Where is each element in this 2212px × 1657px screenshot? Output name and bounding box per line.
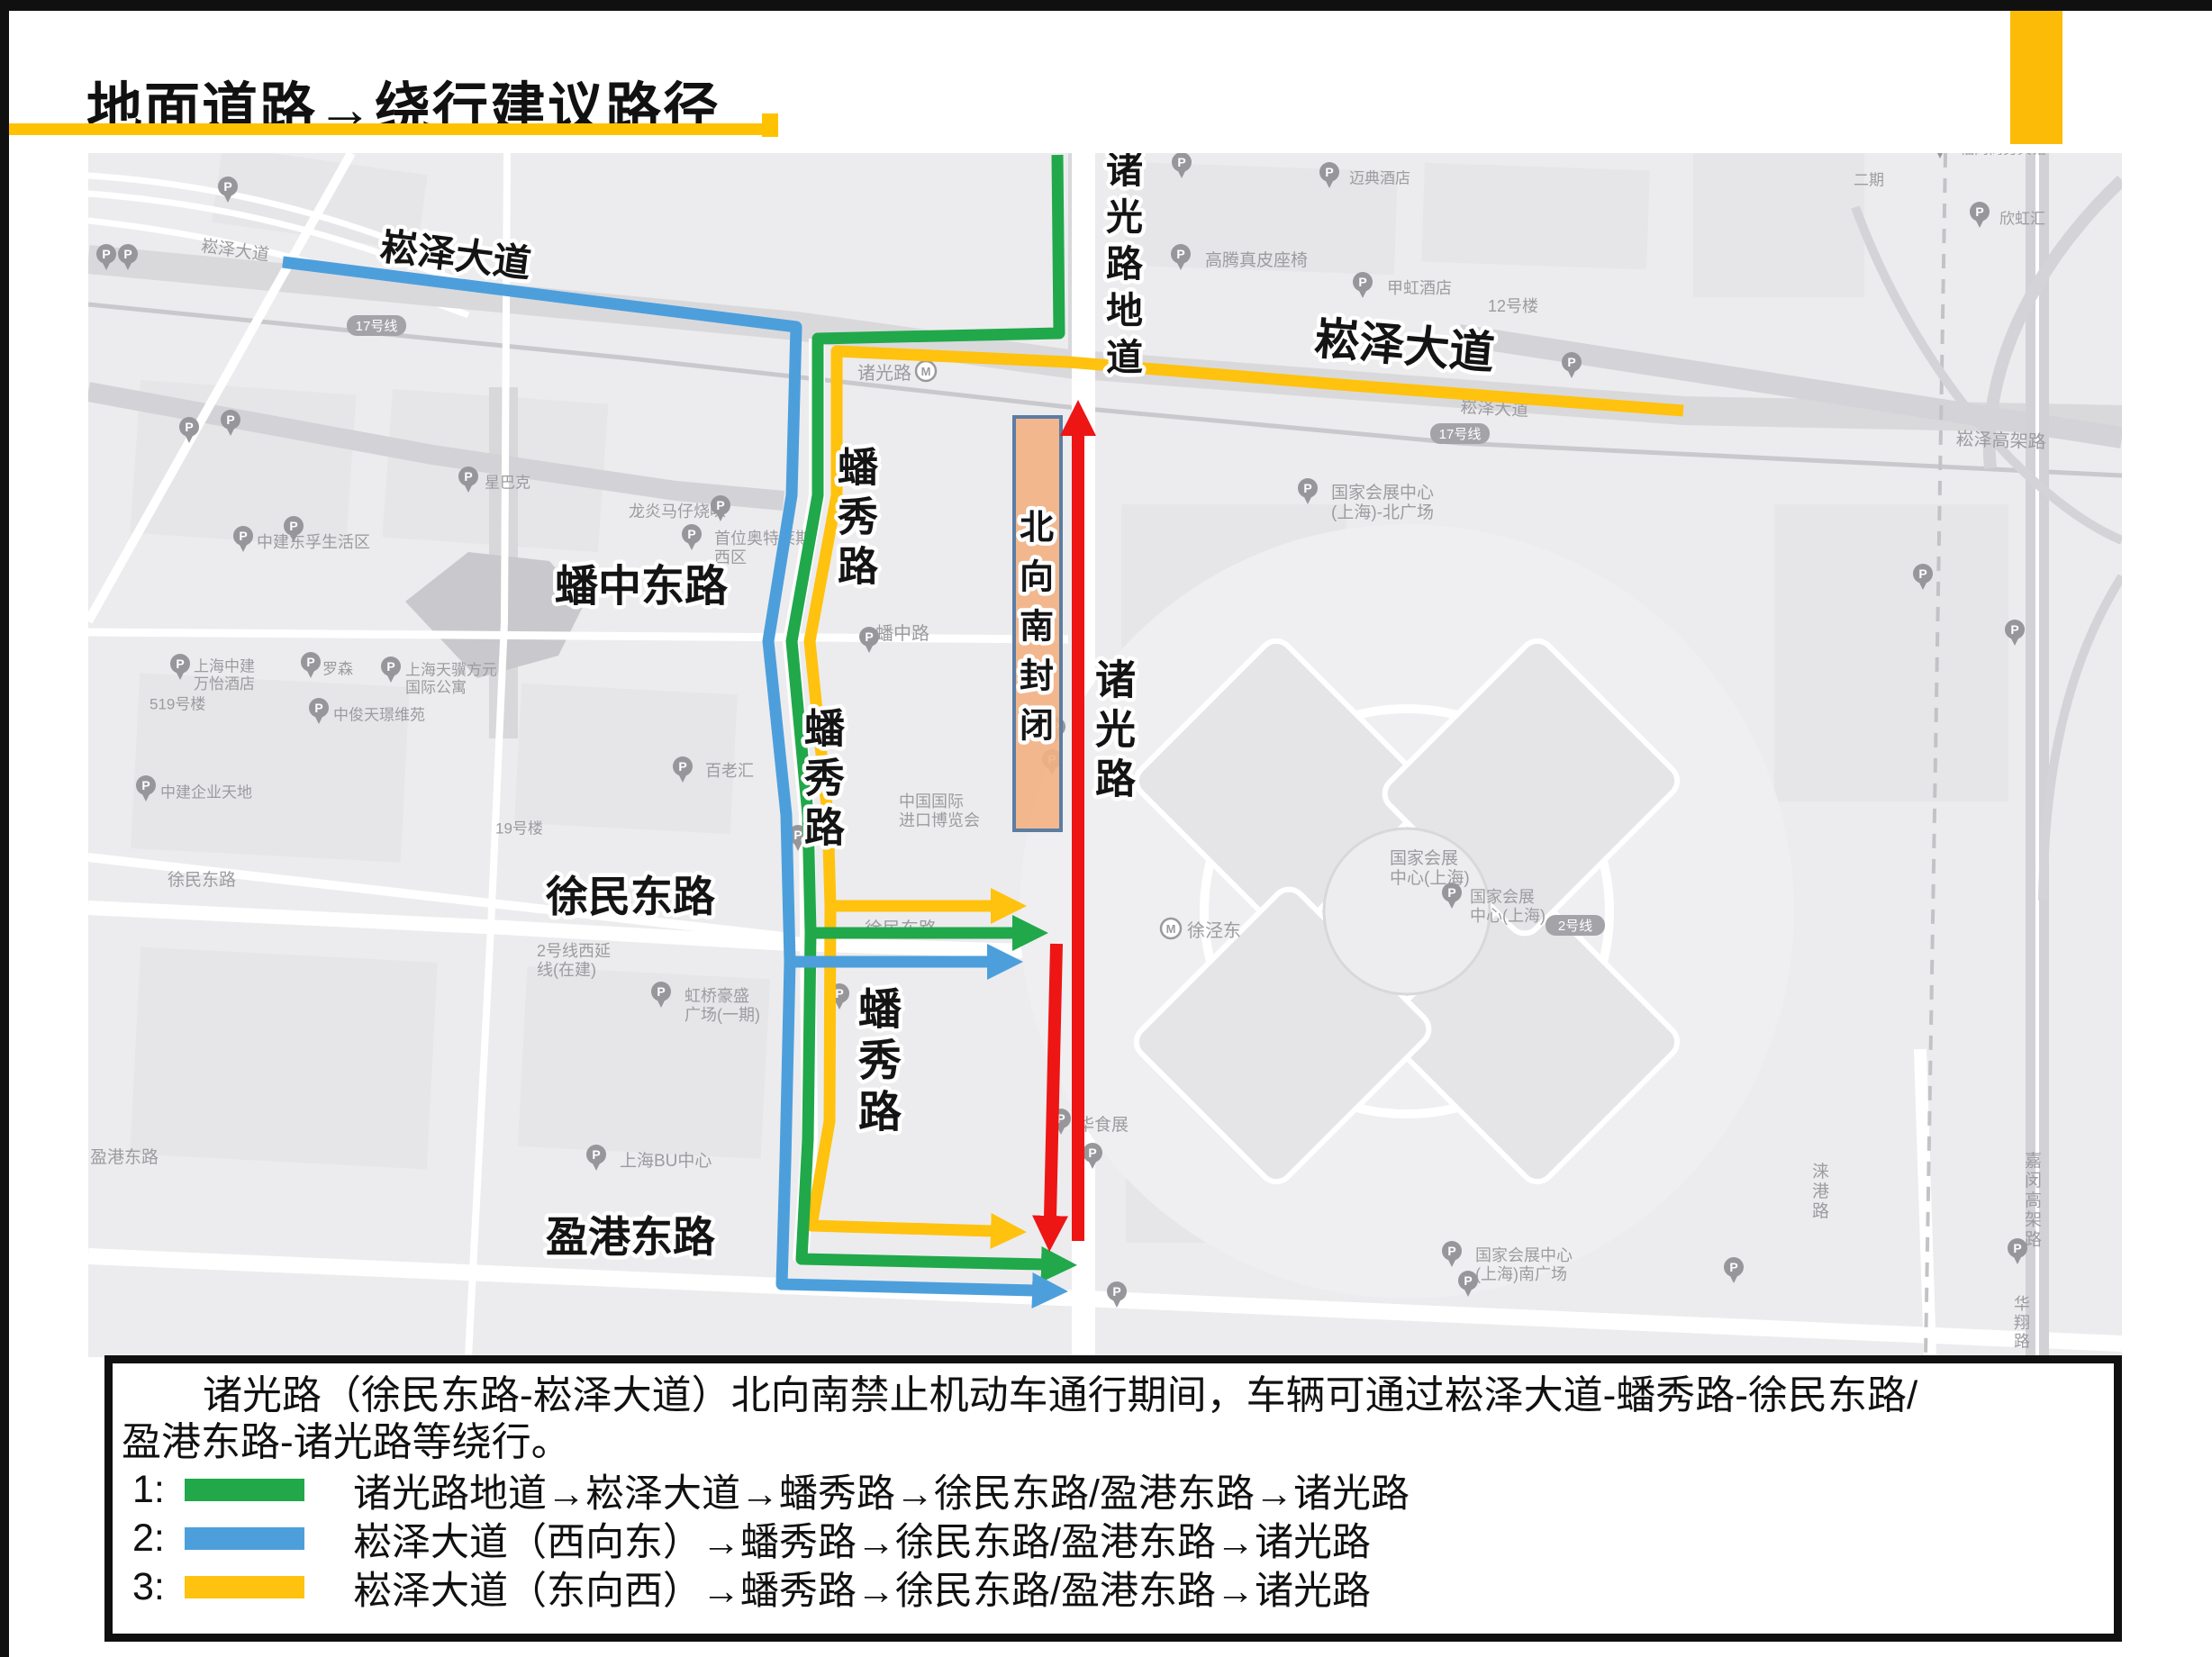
svg-text:路: 路 — [1106, 243, 1144, 285]
map-street-label: 迈典酒店 — [1349, 169, 1410, 186]
map-street-label: 国家会展中心(上海) — [1470, 888, 1546, 925]
svg-text:P: P — [2010, 622, 2018, 637]
svg-text:路: 路 — [1095, 756, 1137, 801]
green-route-swatch — [185, 1479, 304, 1501]
svg-text:封: 封 — [1020, 657, 1054, 695]
svg-text:蟠: 蟠 — [858, 986, 902, 1034]
svg-text:P: P — [865, 629, 873, 644]
road-name-label: 徐民东路 — [545, 873, 716, 920]
svg-text:北: 北 — [1020, 509, 1054, 547]
svg-text:盈港东路: 盈港东路 — [546, 1213, 716, 1261]
svg-text:中俊天璟维苑: 中俊天璟维苑 — [333, 706, 425, 723]
metro-line-badge: 17号线 — [347, 315, 406, 336]
map-street-label: 二期 — [1854, 171, 1884, 188]
svg-text:12号楼: 12号楼 — [1488, 297, 1538, 315]
svg-text:2号线: 2号线 — [1558, 919, 1592, 934]
map-street-label: 519号楼 — [150, 695, 205, 712]
legend-number-3: 3: — [132, 1565, 185, 1609]
svg-text:P: P — [1303, 481, 1311, 495]
svg-text:百老汇: 百老汇 — [705, 762, 754, 780]
svg-text:翔: 翔 — [2014, 1314, 2030, 1332]
svg-text:诸光路: 诸光路 — [857, 363, 911, 384]
svg-text:嘉: 嘉 — [2025, 1151, 2042, 1171]
map-street-label: 崧泽高架路 — [1955, 429, 2046, 452]
legend-number-1: 1: — [132, 1468, 185, 1512]
svg-text:P: P — [793, 828, 802, 842]
svg-text:P: P — [223, 179, 231, 194]
svg-text:P: P — [239, 529, 247, 543]
svg-text:P: P — [102, 247, 110, 261]
svg-text:闵: 闵 — [2025, 1171, 2042, 1191]
svg-text:P: P — [289, 519, 297, 533]
metro-line-badge: 17号线 — [1430, 423, 1490, 444]
slide-top-border — [0, 0, 2212, 11]
svg-text:P: P — [123, 247, 131, 261]
map-street-label: 19号楼 — [495, 819, 543, 837]
svg-text:上海BU中心: 上海BU中心 — [620, 1151, 712, 1171]
svg-text:P: P — [1177, 155, 1185, 169]
map-street-label: 徐民东路 — [168, 870, 236, 890]
corner-accent-rect — [2010, 11, 2062, 144]
svg-text:国家会展中心(上海): 国家会展中心(上海) — [1470, 888, 1546, 925]
svg-text:M: M — [1166, 922, 1176, 936]
svg-text:P: P — [226, 412, 234, 427]
svg-text:P: P — [464, 469, 472, 484]
map-street-label: 福闵商务宾馆 — [1960, 153, 2046, 157]
svg-text:路: 路 — [858, 1089, 902, 1136]
svg-text:P: P — [1975, 204, 1983, 219]
svg-text:P: P — [678, 759, 686, 774]
map-street-label: 涞港路 — [1812, 1162, 1829, 1221]
svg-text:P: P — [1112, 1284, 1120, 1299]
map-street-label: 嘉闵高架路 — [2025, 1151, 2042, 1249]
metro-icon: M — [1161, 919, 1181, 938]
svg-text:蟠中东路: 蟠中东路 — [555, 563, 729, 611]
svg-text:19号楼: 19号楼 — [495, 819, 543, 837]
svg-text:P: P — [314, 701, 322, 715]
map-street-label: 罗森 — [322, 660, 353, 677]
slide-left-border — [0, 0, 9, 1657]
road-name-label: 蟠秀路 — [837, 444, 879, 589]
map-street-label: 国家会展中心(上海)南广场 — [1475, 1246, 1573, 1283]
metro-icon: M — [916, 361, 936, 381]
svg-text:P: P — [306, 655, 314, 669]
svg-text:P: P — [1325, 165, 1333, 179]
svg-text:17号线: 17号线 — [356, 319, 398, 334]
svg-text:蟠: 蟠 — [804, 705, 846, 751]
road-name-label: 北向南封闭 — [1020, 509, 1054, 745]
svg-text:光: 光 — [1106, 196, 1143, 238]
svg-text:M: M — [921, 365, 931, 378]
svg-text:P: P — [1464, 1273, 1472, 1288]
svg-text:P: P — [1088, 1145, 1096, 1160]
svg-text:P: P — [386, 659, 394, 674]
svg-text:P: P — [687, 527, 695, 541]
map-street-label: 12号楼 — [1488, 297, 1538, 315]
svg-text:南: 南 — [1020, 608, 1054, 646]
map-street-label: 星巴克 — [485, 474, 530, 491]
map-street-label: 甲虹酒店 — [1387, 279, 1452, 297]
svg-text:罗森: 罗森 — [322, 660, 353, 677]
svg-text:闭: 闭 — [1020, 707, 1054, 745]
svg-text:崧泽高架路: 崧泽高架路 — [1955, 429, 2046, 452]
svg-text:路: 路 — [838, 543, 879, 589]
detour-info-box: 诸光路（徐民东路-崧泽大道）北向南禁止机动车通行期间，车辆可通过崧泽大道-蟠秀路… — [104, 1355, 2122, 1642]
svg-text:P: P — [716, 498, 724, 512]
map-street-label: 华翔路 — [2014, 1295, 2030, 1350]
svg-text:P: P — [1567, 355, 1575, 369]
map-street-label: 中建企业天地 — [160, 783, 252, 801]
svg-text:甲虹酒店: 甲虹酒店 — [1387, 279, 1452, 297]
svg-text:欣虹汇: 欣虹汇 — [1999, 210, 2045, 227]
map-street-label: 蟠中路 — [875, 623, 929, 644]
svg-text:P: P — [592, 1147, 600, 1162]
map-street-label: 徐泾东 — [1187, 920, 1241, 941]
map-street-label: 诸光路 — [857, 363, 911, 384]
map-street-label: 上海中建万怡酒店 — [194, 657, 255, 693]
svg-text:架: 架 — [2025, 1210, 2042, 1230]
road-name-label: 蟠中东路 — [555, 563, 729, 611]
svg-text:P: P — [2013, 1241, 2021, 1255]
svg-text:P: P — [1358, 275, 1366, 289]
legend-route-1: 诸光路地道→崧泽大道→蟠秀路→徐民东路/盈港东路→诸光路 — [353, 1462, 1410, 1518]
svg-text:P: P — [176, 656, 184, 671]
svg-text:路: 路 — [2014, 1333, 2030, 1351]
yellow-route-swatch — [185, 1576, 304, 1598]
legend-row-3: 3: 崧泽大道（东向西）→蟠秀路→徐民东路/盈港东路→诸光路 — [132, 1563, 2114, 1612]
svg-text:路: 路 — [804, 804, 846, 850]
title-underline — [9, 123, 762, 135]
road-name-label: 蟠秀路 — [803, 705, 846, 850]
svg-text:光: 光 — [1095, 706, 1136, 752]
svg-text:秀: 秀 — [837, 493, 878, 539]
svg-text:519号楼: 519号楼 — [150, 695, 205, 712]
map-street-label: 国家会展中心(上海)-北广场 — [1331, 483, 1434, 522]
svg-text:虹桥豪盛广场(一期): 虹桥豪盛广场(一期) — [684, 987, 760, 1024]
legend-row-1: 1: 诸光路地道→崧泽大道→蟠秀路→徐民东路/盈港东路→诸光路 — [132, 1466, 2114, 1515]
svg-text:P: P — [835, 986, 843, 1001]
road-name-label: 盈港东路 — [546, 1213, 716, 1261]
svg-text:华: 华 — [2014, 1295, 2030, 1313]
map-street-label: 中建东孚生活区 — [257, 533, 370, 551]
svg-text:地: 地 — [1106, 290, 1143, 331]
legend-route-2: 崧泽大道（西向东）→蟠秀路→徐民东路/盈港东路→诸光路 — [353, 1511, 1371, 1567]
legend-route-3: 崧泽大道（东向西）→蟠秀路→徐民东路/盈港东路→诸光路 — [353, 1560, 1371, 1616]
map-street-label: 盈港东路 — [90, 1147, 159, 1167]
title-underline-endcap — [762, 113, 778, 137]
svg-text:P: P — [1447, 885, 1455, 900]
closure-notice-line1: 诸光路（徐民东路-崧泽大道）北向南禁止机动车通行期间，车辆可通过崧泽大道-蟠秀路… — [122, 1372, 2114, 1419]
svg-text:P: P — [1176, 247, 1184, 261]
svg-text:福闵商务宾馆: 福闵商务宾馆 — [1960, 153, 2046, 157]
svg-text:上海中建万怡酒店: 上海中建万怡酒店 — [194, 657, 255, 693]
svg-text:中建企业天地: 中建企业天地 — [160, 783, 252, 801]
svg-text:路: 路 — [1812, 1201, 1829, 1221]
map-street-label: 上海BU中心 — [620, 1151, 712, 1171]
svg-text:P: P — [657, 984, 665, 999]
svg-text:秀: 秀 — [857, 1037, 902, 1085]
svg-text:高: 高 — [2025, 1191, 2042, 1210]
map-street-label: 百老汇 — [705, 762, 754, 780]
blue-route-swatch — [185, 1527, 304, 1550]
map-street-label: 中俊天璟维苑 — [333, 706, 425, 723]
svg-text:P: P — [1918, 566, 1926, 581]
svg-text:P: P — [1729, 1260, 1737, 1274]
svg-text:中建东孚生活区: 中建东孚生活区 — [257, 533, 370, 551]
svg-text:徐民东路: 徐民东路 — [168, 870, 236, 890]
svg-text:徐泾东: 徐泾东 — [1187, 920, 1241, 941]
svg-text:徐民东路: 徐民东路 — [545, 873, 716, 920]
svg-text:蟠中路: 蟠中路 — [875, 623, 929, 644]
svg-text:P: P — [185, 420, 193, 434]
svg-text:盈港东路: 盈港东路 — [90, 1147, 159, 1167]
svg-text:涞: 涞 — [1812, 1162, 1829, 1182]
road-name-label: 蟠秀路 — [857, 986, 902, 1136]
svg-text:P: P — [141, 778, 150, 792]
svg-text:港: 港 — [1812, 1182, 1829, 1201]
svg-text:道: 道 — [1106, 337, 1143, 378]
svg-text:高腾真皮座椅: 高腾真皮座椅 — [1205, 250, 1308, 270]
map-canvas: 崧泽大道崧泽大道诸光路蟠中路徐民东路2号线西延线(在建)盈港东路徐民东路崧泽高架… — [88, 153, 2122, 1357]
svg-text:国家会展中心(上海): 国家会展中心(上海) — [1390, 848, 1470, 888]
closure-notice: 诸光路（徐民东路-崧泽大道）北向南禁止机动车通行期间，车辆可通过崧泽大道-蟠秀路… — [122, 1372, 2114, 1466]
metro-line-badge: 2号线 — [1546, 915, 1605, 936]
svg-text:迈典酒店: 迈典酒店 — [1349, 169, 1410, 186]
svg-text:诸: 诸 — [1095, 656, 1136, 702]
map-street-label: 高腾真皮座椅 — [1205, 250, 1308, 270]
svg-text:蟠: 蟠 — [838, 444, 879, 490]
svg-text:星巴克: 星巴克 — [485, 474, 530, 491]
detour-map: 崧泽大道崧泽大道诸光路蟠中路徐民东路2号线西延线(在建)盈港东路徐民东路崧泽高架… — [88, 153, 2122, 1357]
road-name-label: 诸光路 — [1095, 656, 1137, 801]
map-street-label: 欣虹汇 — [1999, 210, 2045, 227]
legend-row-2: 2: 崧泽大道（西向东）→蟠秀路→徐民东路/盈港东路→诸光路 — [132, 1515, 2114, 1563]
svg-text:国家会展中心(上海)-北广场: 国家会展中心(上海)-北广场 — [1331, 483, 1434, 522]
svg-text:诸: 诸 — [1106, 153, 1143, 191]
svg-text:秀: 秀 — [803, 755, 845, 801]
svg-text:国家会展中心(上海)南广场: 国家会展中心(上海)南广场 — [1475, 1246, 1573, 1283]
svg-text:华食展: 华食展 — [1077, 1115, 1129, 1135]
road-name-label: 诸光路地道 — [1106, 153, 1144, 378]
svg-text:二期: 二期 — [1854, 171, 1884, 188]
legend-number-2: 2: — [132, 1517, 185, 1561]
svg-text:P: P — [1447, 1244, 1455, 1258]
svg-text:17号线: 17号线 — [1439, 427, 1482, 442]
map-street-label: 华食展 — [1077, 1115, 1129, 1135]
closure-notice-line2: 盈港东路-诸光路等绕行。 — [122, 1419, 2114, 1466]
svg-text:向: 向 — [1020, 558, 1054, 596]
map-street-label: 虹桥豪盛广场(一期) — [684, 987, 760, 1024]
map-street-label: 国家会展中心(上海) — [1390, 848, 1470, 888]
